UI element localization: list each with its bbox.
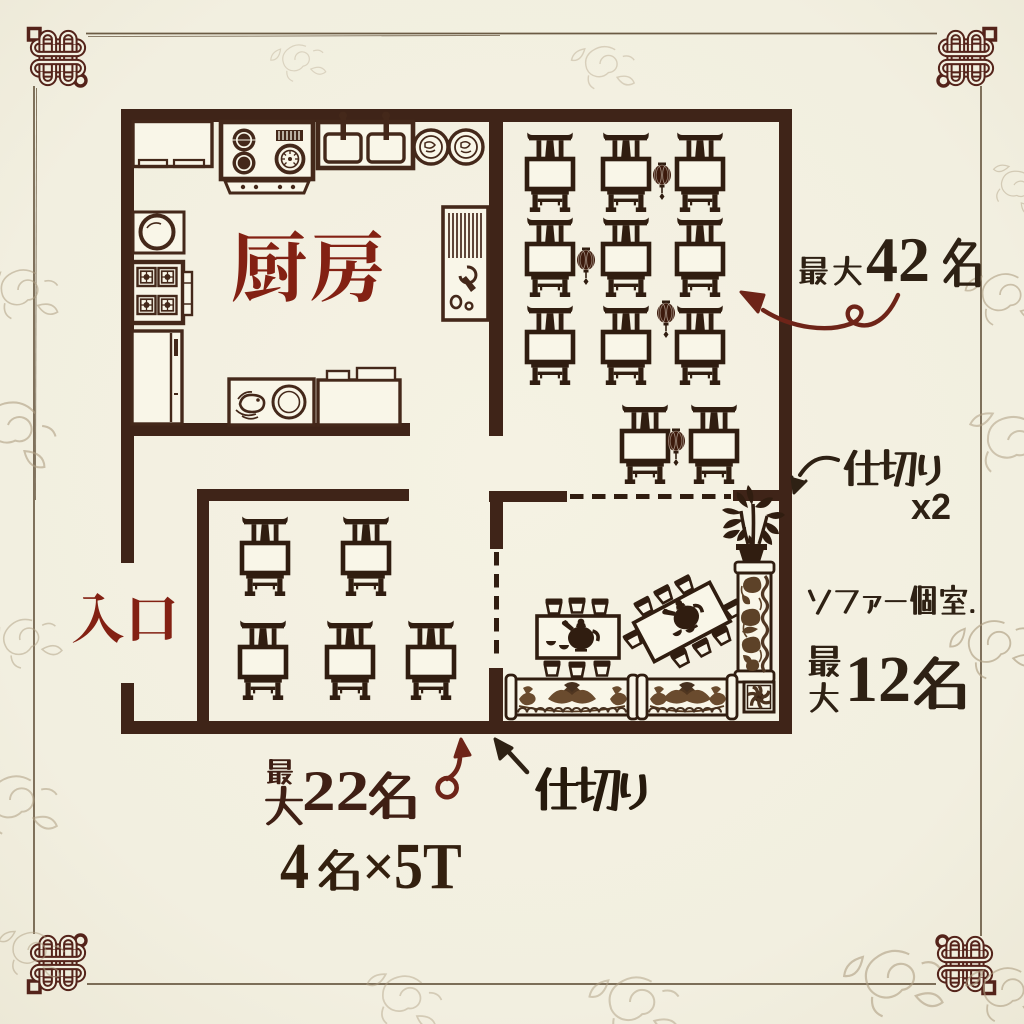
svg-text:4: 4 [280, 831, 309, 903]
svg-text:22: 22 [302, 760, 369, 823]
svg-text:42: 42 [866, 224, 930, 295]
svg-text:x2: x2 [911, 486, 951, 527]
svg-text:5T: 5T [394, 831, 462, 903]
svg-text:×: × [362, 834, 395, 899]
svg-text:12: 12 [845, 643, 911, 716]
